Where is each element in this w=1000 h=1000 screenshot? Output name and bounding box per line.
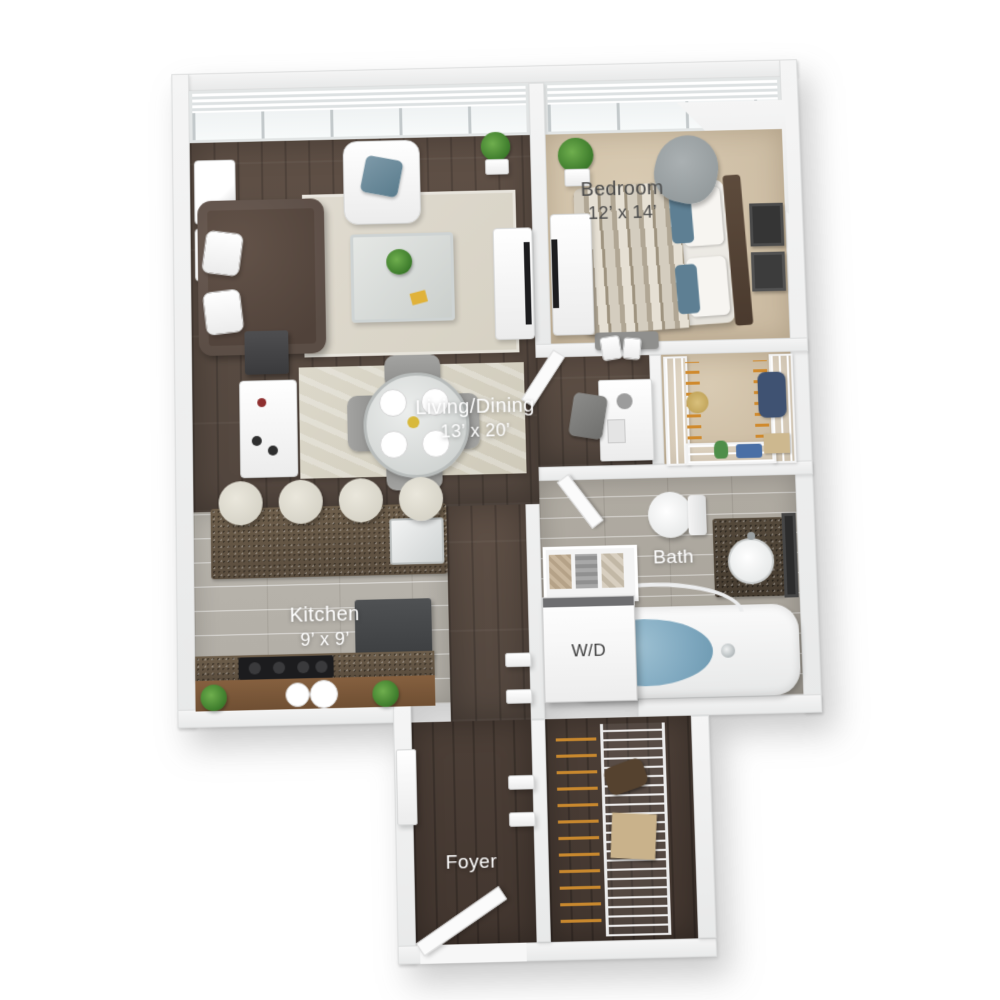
- sofa-pillow: [202, 288, 245, 336]
- burner: [315, 660, 327, 672]
- console-table: [239, 379, 298, 478]
- kitchen-name: Kitchen: [289, 601, 359, 629]
- bedroom-wall-art: [751, 252, 786, 292]
- accent-pillow-teal: [675, 264, 701, 315]
- bar-cart: [244, 330, 288, 374]
- living-dining-dims: 13’ x 20’: [416, 419, 536, 445]
- storage-box: [763, 433, 790, 454]
- washer-dryer-label: W/D: [571, 639, 606, 662]
- sofa-pillow: [201, 230, 244, 277]
- storage-box: [610, 813, 657, 860]
- foyer-console: [396, 749, 418, 826]
- burner: [249, 662, 261, 674]
- foyer-label: Foyer: [445, 850, 497, 877]
- foyer-shelf: [509, 812, 536, 827]
- living-dining-label: Living/Dining 13’ x 20’: [415, 393, 536, 445]
- foyer-shelf: [508, 775, 535, 790]
- notebook: [607, 419, 626, 443]
- vase: [714, 440, 729, 458]
- kitchen-label: Kitchen 9’ x 9’: [289, 601, 360, 653]
- planter-box: [485, 159, 509, 175]
- floor-plan: Bedroom 12’ x 14’ Living/Dining 13’ x 20…: [0, 0, 1000, 1000]
- corridor-shelf: [505, 652, 532, 667]
- floor-plan-canvas: Bedroom 12’ x 14’ Living/Dining 13’ x 20…: [0, 0, 1000, 1000]
- living-room-windows: [189, 83, 530, 143]
- burner: [273, 662, 285, 674]
- washer-dryer-top: [543, 596, 634, 607]
- hanging-clothes: [757, 372, 787, 418]
- refrigerator: [355, 598, 433, 659]
- living-dining-name: Living/Dining: [415, 393, 535, 422]
- coffee-table: [350, 232, 455, 323]
- linen-basket: [575, 554, 598, 589]
- bath-label: Bath: [653, 545, 695, 571]
- desk-chair: [568, 392, 608, 440]
- linen-basket: [601, 553, 624, 588]
- bedroom-label: Bedroom 12’ x 14’: [580, 176, 664, 226]
- shopping-bag: [622, 337, 641, 360]
- range-cooktop: [238, 655, 333, 680]
- bedroom-name: Bedroom: [580, 176, 664, 203]
- shopping-bag: [599, 335, 623, 362]
- bedroom-dims: 12’ x 14’: [581, 201, 665, 226]
- accent-pillow: [360, 155, 404, 198]
- corridor-shelf: [506, 689, 533, 704]
- island-sink: [389, 517, 444, 565]
- window-blinds: [192, 86, 526, 113]
- kitchen-dims: 9’ x 9’: [290, 628, 361, 653]
- bedroom-wall-art: [749, 203, 784, 247]
- toilet-tank: [688, 495, 707, 536]
- linen-basket: [549, 554, 572, 589]
- foyer-closet-hangers: [556, 736, 602, 923]
- storage-bin: [736, 444, 762, 459]
- burner: [297, 661, 309, 673]
